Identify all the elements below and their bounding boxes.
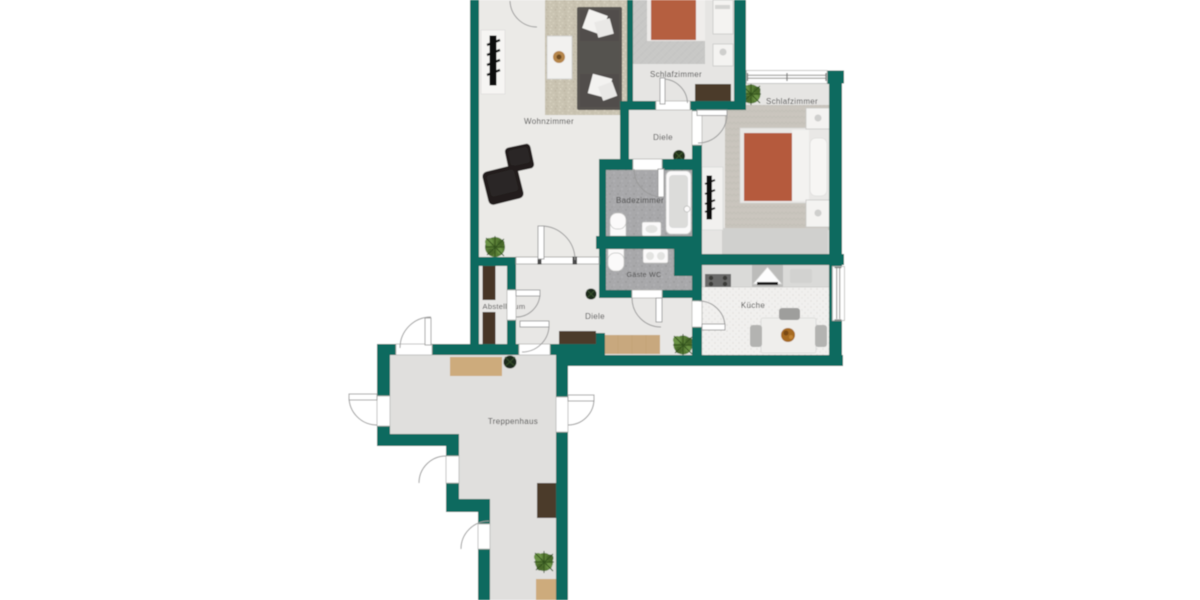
svg-text:Abstellraum: Abstellraum: [483, 302, 526, 311]
svg-text:Küche: Küche: [741, 301, 765, 310]
svg-text:Schlafzimmer: Schlafzimmer: [766, 97, 818, 106]
svg-text:Diele: Diele: [653, 133, 673, 142]
svg-text:Diele: Diele: [585, 312, 605, 321]
svg-text:Schlafzimmer: Schlafzimmer: [650, 70, 702, 79]
svg-text:Wohnzimmer: Wohnzimmer: [524, 117, 574, 126]
svg-text:Gäste WC: Gäste WC: [627, 272, 662, 279]
svg-text:Badezimmer: Badezimmer: [616, 196, 664, 205]
svg-text:Treppenhaus: Treppenhaus: [488, 417, 538, 426]
